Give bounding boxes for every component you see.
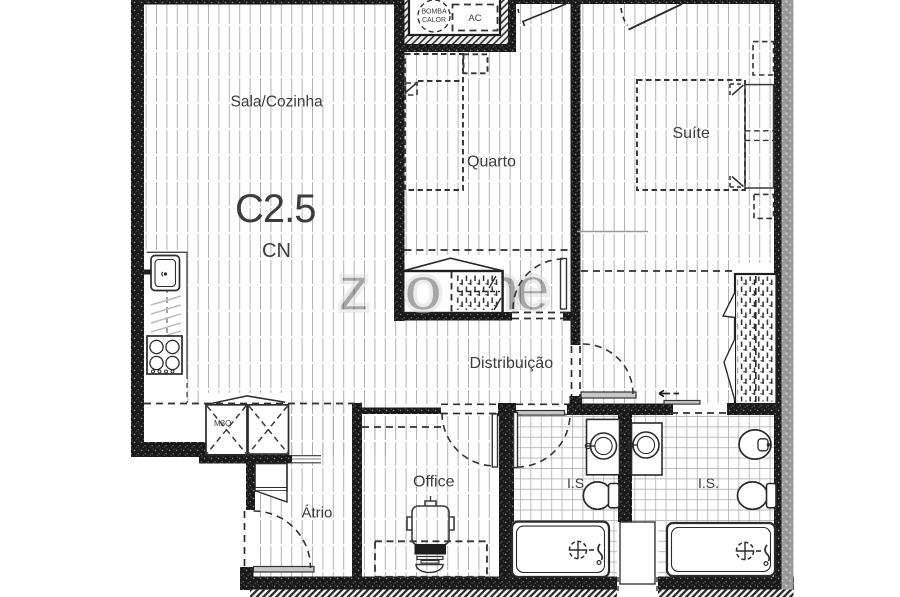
svg-text:Suíte: Suíte — [673, 125, 710, 142]
svg-text:BOMBA: BOMBA — [421, 9, 447, 16]
svg-text:I.S.: I.S. — [698, 475, 719, 491]
svg-text:CALOR: CALOR — [422, 17, 446, 24]
svg-text:Distribuição: Distribuição — [470, 355, 554, 372]
svg-text:I.S.: I.S. — [567, 475, 588, 491]
svg-text:C2.5: C2.5 — [235, 187, 316, 231]
svg-text:M3Q: M3Q — [214, 419, 231, 428]
svg-text:Átrio: Átrio — [302, 505, 333, 522]
svg-text:z: z — [337, 251, 370, 325]
svg-text:o: o — [403, 251, 443, 325]
svg-text:AC: AC — [468, 13, 481, 24]
svg-text:Quarto: Quarto — [467, 154, 516, 171]
svg-text:CN: CN — [262, 240, 291, 262]
svg-text:Sala/Cozinha: Sala/Cozinha — [231, 94, 324, 111]
svg-text:Office: Office — [413, 474, 455, 491]
